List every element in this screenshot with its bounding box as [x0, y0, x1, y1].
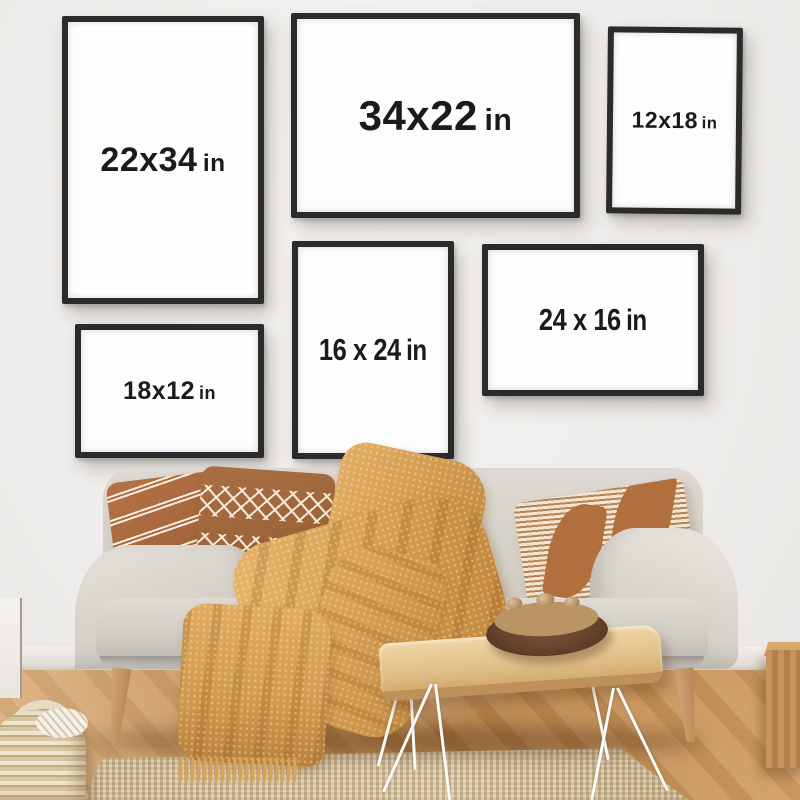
- unit-text: in: [199, 383, 216, 403]
- unit-text: in: [406, 334, 427, 367]
- diamond-band: [199, 485, 335, 525]
- unit-text: in: [626, 304, 647, 337]
- frame-18x12: 18x12in: [75, 324, 264, 458]
- room-scene: 22x34in 34x22in 12x18in 18x12in 16 x 24i…: [0, 0, 800, 800]
- door-frame-edge: [0, 598, 22, 698]
- size-text: 12x18: [631, 107, 698, 134]
- throw-fringe: [180, 757, 300, 781]
- size-label: 12x18in: [631, 107, 717, 135]
- frame-24x16: 24 x 16in: [482, 244, 704, 396]
- frame-mat: 18x12in: [81, 330, 258, 452]
- unit-text: in: [203, 150, 226, 177]
- frame-mat: 16 x 24in: [298, 247, 448, 453]
- size-text: 34x22: [359, 92, 478, 139]
- frame-34x22: 34x22in: [291, 13, 580, 218]
- wood-block-stool: [766, 650, 800, 768]
- size-text: 16 x 24: [319, 332, 401, 367]
- size-label: 16 x 24in: [319, 332, 427, 368]
- frame-mat: 12x18in: [612, 32, 737, 208]
- throw-blanket-hanging: [176, 602, 332, 768]
- size-label: 22x34in: [100, 141, 225, 180]
- size-label: 24 x 16in: [539, 302, 647, 338]
- size-label: 18x12in: [123, 377, 216, 406]
- frame-mat: 22x34in: [68, 22, 258, 298]
- unit-text: in: [702, 113, 718, 132]
- frame-22x34: 22x34in: [62, 16, 264, 304]
- frame-mat: 24 x 16in: [488, 250, 698, 390]
- frame-16x24: 16 x 24in: [292, 241, 454, 459]
- unit-text: in: [485, 104, 513, 137]
- size-text: 22x34: [100, 141, 197, 179]
- size-text: 18x12: [123, 377, 195, 405]
- size-label: 34x22in: [359, 92, 513, 140]
- basket-blanket: [36, 708, 88, 738]
- size-text: 24 x 16: [539, 302, 621, 337]
- frame-12x18: 12x18in: [606, 26, 743, 214]
- frame-mat: 34x22in: [297, 19, 574, 212]
